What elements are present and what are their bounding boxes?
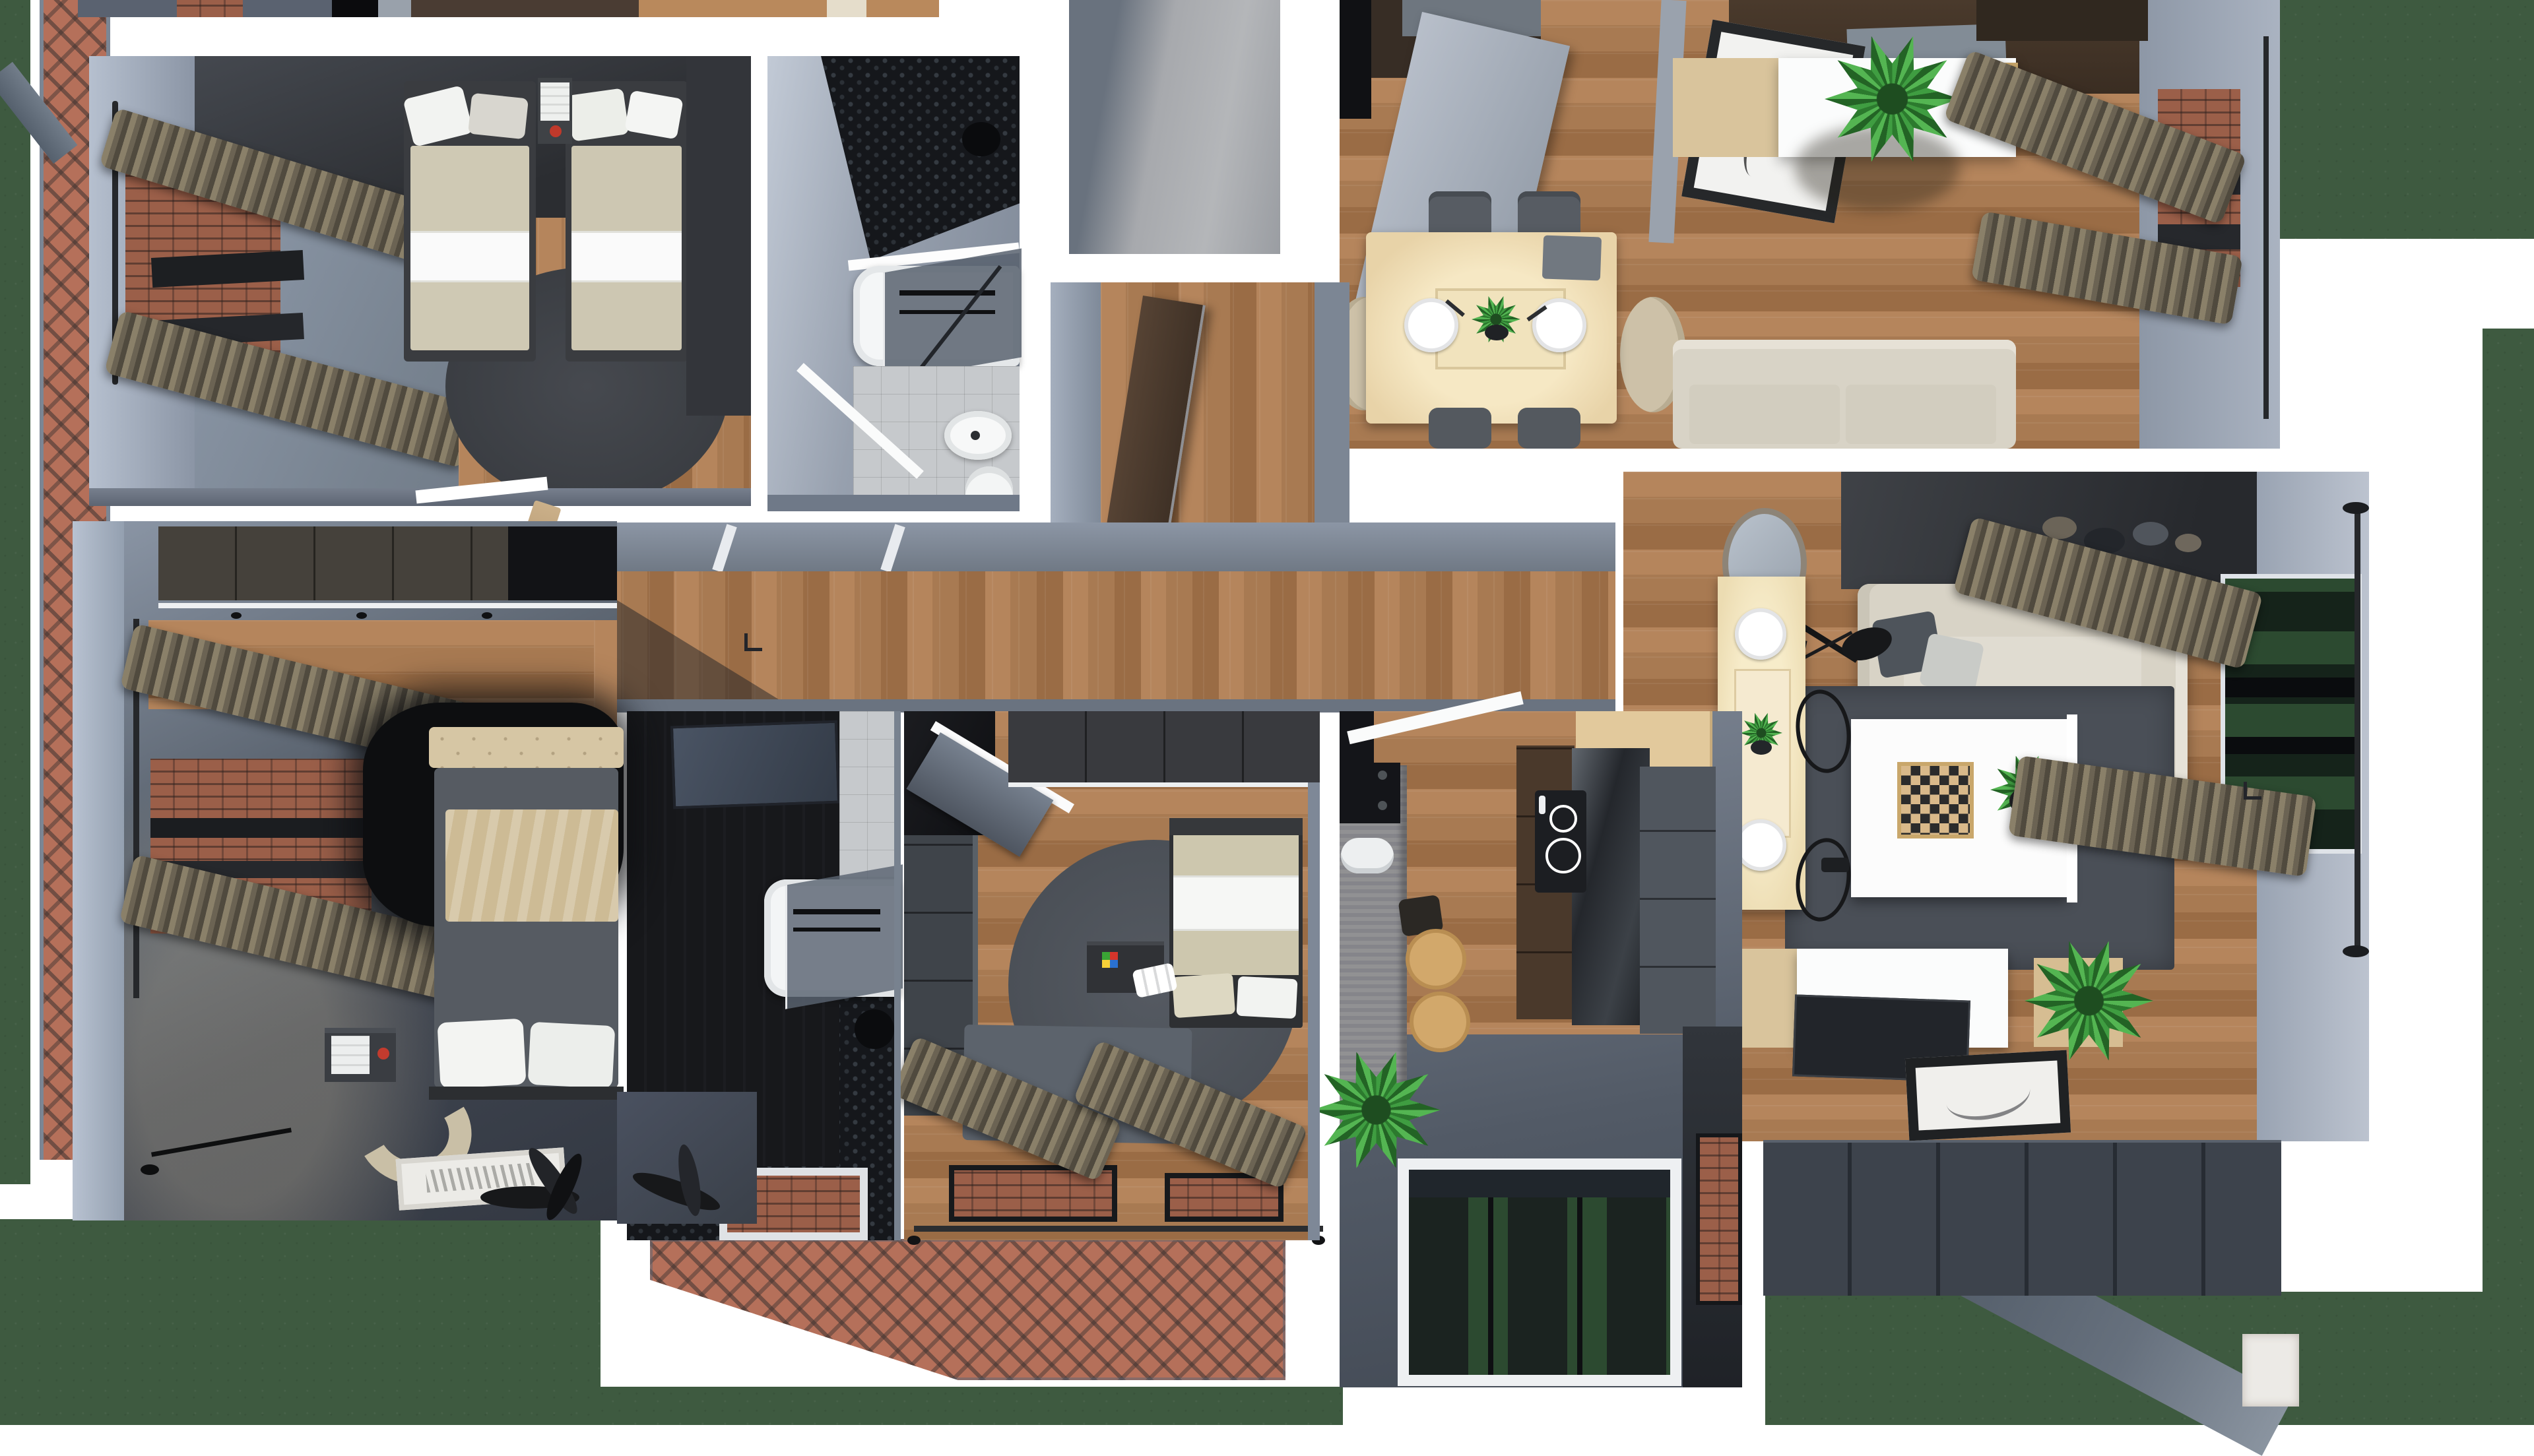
centerpiece-pot (1485, 325, 1509, 340)
bathroom-mirror (670, 720, 840, 809)
pillow (1172, 973, 1235, 1018)
bed-sheet-band (1173, 877, 1299, 929)
kitchen-right-window-brick (1696, 1133, 1742, 1305)
pillow (468, 93, 529, 140)
floor-corner-mark (744, 633, 762, 651)
dining-dark-wardrobe-topright (1976, 0, 2148, 41)
dining-room (1340, 0, 2280, 449)
beige-blanket (445, 809, 618, 922)
curtain-rod-icon (914, 1226, 1323, 1232)
tufted-headboard (429, 727, 624, 768)
nightstand (538, 78, 572, 144)
pillow (437, 1019, 526, 1089)
grass-bottom-left (0, 1219, 601, 1425)
entry-porch (1069, 0, 1280, 254)
books-stack (540, 82, 569, 121)
wood-deck-terrace (1763, 1140, 2281, 1296)
rod-finial (2343, 945, 2369, 957)
sheet-fold (410, 233, 529, 280)
lamp-base (141, 1164, 159, 1175)
sheet-fold (571, 233, 682, 280)
master-window-bar (150, 818, 372, 838)
pillow (403, 85, 473, 147)
wardrobe-light-edge (158, 603, 617, 608)
red-decor-item (550, 125, 562, 137)
ceiling-spot-icon (482, 612, 492, 619)
twin-bed-1 (404, 81, 536, 362)
floor-corner-mark (2244, 782, 2261, 800)
serving-tray (1542, 235, 1602, 280)
bath-stool-dark (855, 1009, 894, 1049)
hall-top-wall (596, 522, 1615, 573)
chessboard (1897, 762, 1974, 839)
top-strip-room (78, 0, 939, 17)
rubiks-cube-icon (1102, 952, 1118, 968)
curtain-rod-icon (2263, 36, 2269, 419)
bed-headboard (1169, 818, 1303, 835)
floorplan-scene (0, 0, 2534, 1425)
ceiling-spot-icon (231, 612, 242, 619)
window-mullion (2225, 737, 2357, 754)
top-strip-brick (177, 0, 243, 17)
top-strip-dark-gap (332, 0, 378, 17)
twin-bedroom (89, 56, 751, 506)
wall-disc-decor (2175, 534, 2201, 552)
media-console-beige (1734, 949, 1797, 1048)
wall-disc-decor (2042, 517, 2077, 539)
dining-table (1366, 232, 1617, 424)
sink-drain (971, 431, 980, 440)
floor-lamp-thin (151, 1127, 292, 1156)
master-wardrobe-black (508, 526, 617, 600)
kitchen (1340, 711, 1742, 1387)
bathroom-middle-right-wall (894, 711, 901, 1240)
marble-slab (2242, 1334, 2299, 1407)
shower-head-icon (962, 122, 1000, 156)
pillow (624, 90, 684, 140)
frame-art-sketch (1942, 1066, 2034, 1127)
terrace-picture-frame (1905, 1050, 2071, 1141)
kitchen-stool (1410, 992, 1470, 1052)
twin-bedroom-wardrobe (686, 56, 751, 416)
burner-icon (1549, 805, 1577, 833)
towel-bar-icon (899, 310, 995, 314)
grass-left-strip (0, 0, 30, 1184)
ceiling-spot-icon (356, 612, 367, 619)
pillow (1236, 976, 1297, 1019)
wardrobe-light-edge (1008, 782, 1320, 787)
towel-roll (1341, 838, 1394, 873)
appliance-knob (1378, 771, 1387, 780)
towel-bar-icon (793, 909, 880, 914)
place-setting-plate (1532, 298, 1586, 352)
window-mullion (1577, 1170, 1582, 1375)
towel-bar-icon (793, 928, 880, 932)
cooktop-knob (1539, 796, 1545, 814)
master-wardrobe (158, 526, 508, 600)
small-bedroom-right-wall (1308, 782, 1320, 1240)
bathroom-top (767, 56, 1020, 511)
curtain-rod-icon (2355, 510, 2360, 949)
nook-plate (1735, 608, 1786, 660)
twin-bed-2 (566, 81, 688, 362)
master-left-wall (73, 521, 124, 1220)
sofa-cushion (1689, 385, 1840, 444)
top-strip-light-wall (378, 0, 411, 17)
window-mullion (1488, 1170, 1493, 1375)
master-bed (429, 727, 624, 1100)
pillow (528, 1022, 616, 1089)
small-bedroom-wardrobe (1008, 711, 1320, 782)
bathtub-middle-glass (785, 864, 903, 1009)
appliance-knob (1378, 801, 1387, 810)
burner-icon (1545, 838, 1581, 873)
rod-finial (2343, 502, 2369, 514)
dining-room-sofa (1673, 340, 2016, 449)
master-bedroom (73, 521, 617, 1220)
bathroom-top-bottom-wall (767, 495, 1020, 511)
top-strip-brown-cabinet (411, 0, 639, 17)
grass-right-strip (2483, 329, 2534, 1293)
top-strip-light-pool (827, 0, 866, 17)
dining-chair (1429, 408, 1491, 449)
bathroom-middle-tile-wall (839, 711, 901, 884)
nook-plate (1735, 819, 1786, 871)
wall-disc-decor (2133, 522, 2168, 546)
rod-finial (907, 1236, 921, 1245)
books-stack (331, 1036, 370, 1074)
window-bench (1409, 1170, 1670, 1197)
nook-pot (1751, 740, 1772, 755)
nightstand (1087, 941, 1164, 993)
single-bed (1169, 818, 1303, 1028)
nightstand (325, 1028, 396, 1082)
top-strip-wood-floor (639, 0, 939, 17)
grass-top-right (2280, 0, 2534, 239)
console-beige-section (1673, 58, 1778, 157)
shower-hex-wall (794, 56, 1020, 261)
grass-bottom-center (597, 1387, 1343, 1425)
red-decor-item (377, 1048, 389, 1060)
cooktop (1535, 790, 1586, 893)
kitchen-window (1398, 1158, 1681, 1386)
phone-on-floor (1821, 858, 1849, 872)
kitchen-stool (1406, 929, 1466, 990)
bed-foot-bar (429, 1087, 624, 1100)
pillow (567, 88, 630, 141)
kitchen-cabinet-gray (1640, 767, 1716, 1034)
window-mullion (2225, 678, 2357, 697)
dining-black-sliver (1340, 0, 1371, 119)
small-bedroom (904, 711, 1320, 1240)
kitchen-black-appliance (1340, 763, 1400, 823)
sofa-cushion (1846, 385, 1996, 444)
brick-patio (650, 1239, 1285, 1380)
dining-chair (1518, 408, 1580, 449)
